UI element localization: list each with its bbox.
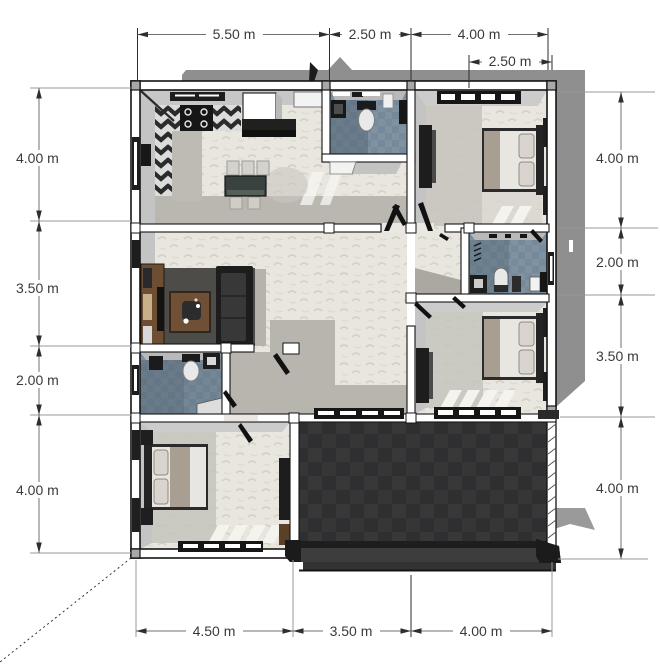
svg-text:4.00 m: 4.00 m: [16, 482, 59, 498]
svg-text:2.00 m: 2.00 m: [16, 372, 59, 388]
svg-text:2.50 m: 2.50 m: [349, 26, 392, 42]
svg-text:4.00 m: 4.00 m: [458, 26, 501, 42]
svg-text:3.50 m: 3.50 m: [330, 623, 373, 639]
svg-text:4.00 m: 4.00 m: [596, 150, 639, 166]
svg-text:4.00 m: 4.00 m: [596, 480, 639, 496]
svg-text:4.00 m: 4.00 m: [460, 623, 503, 639]
svg-text:3.50 m: 3.50 m: [596, 348, 639, 364]
svg-text:4.00 m: 4.00 m: [16, 150, 59, 166]
svg-text:2.00 m: 2.00 m: [596, 254, 639, 270]
svg-text:4.50 m: 4.50 m: [193, 623, 236, 639]
svg-text:2.50 m: 2.50 m: [489, 53, 532, 69]
svg-text:3.50 m: 3.50 m: [16, 280, 59, 296]
svg-text:5.50 m: 5.50 m: [213, 26, 256, 42]
